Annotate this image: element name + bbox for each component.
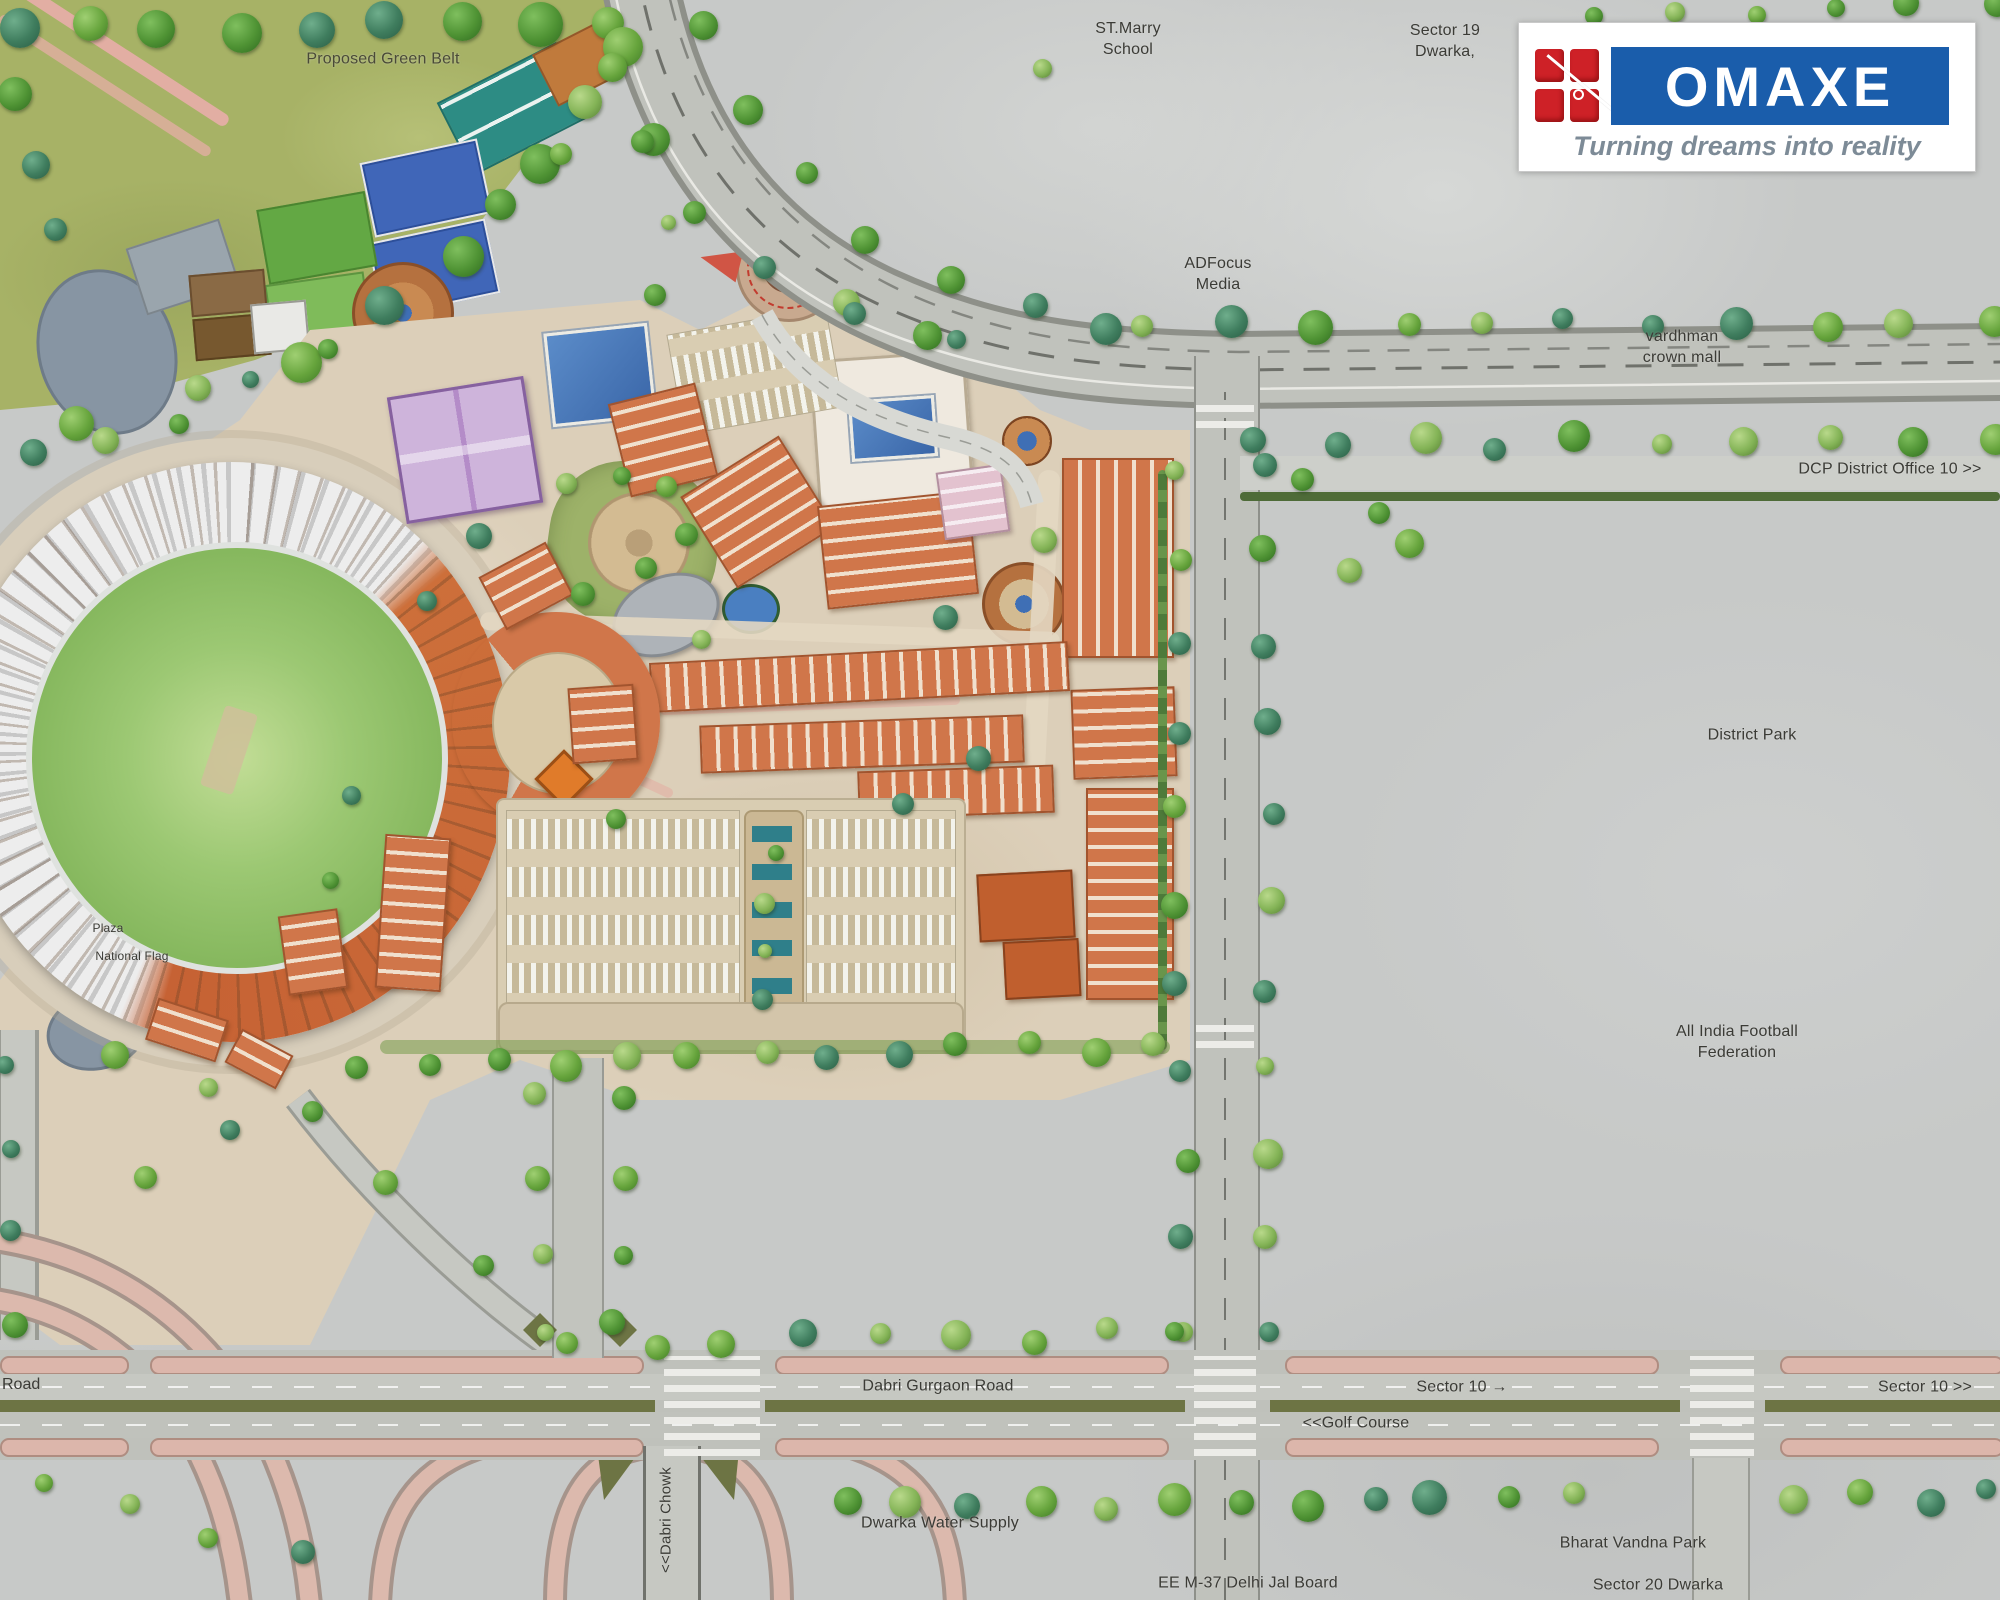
label-road-left: Road (2, 1376, 40, 1394)
label-dwarka-water-supply: Dwarka Water Supply (861, 1514, 1019, 1535)
highway-shoulder (150, 1438, 644, 1457)
park-boundary-hedge (1240, 492, 2000, 501)
label-vardhman-crown-mall: vardhman crown mall (1643, 327, 1721, 369)
highway-shoulder (0, 1356, 129, 1375)
pedestrian-crossing (1196, 1018, 1254, 1048)
highway-shoulder (775, 1438, 1169, 1457)
highway-shoulder (775, 1356, 1169, 1375)
label-golf-course: <<Golf Course (1303, 1414, 1410, 1435)
label-district-park: District Park (1708, 726, 1797, 747)
highway-shoulder (1780, 1356, 2000, 1375)
omaxe-logo: OMAXE Turning dreams into reality (1518, 22, 1976, 172)
label-ee-m37: EE M-37 Delhi Jal Board (1158, 1574, 1338, 1595)
highway-median (1270, 1400, 1680, 1412)
highway-shoulder (0, 1438, 129, 1457)
highway-shoulder (1285, 1356, 1659, 1375)
label-bharat-vandna-park: Bharat Vandna Park (1560, 1534, 1707, 1555)
logo-red-square (1535, 89, 1564, 122)
label-proposed-green-belt: Proposed Green Belt (306, 50, 459, 71)
label-sector-19-dwarka: Sector 19 Dwarka, (1410, 21, 1480, 63)
pedestrian-crossing (1194, 1356, 1256, 1456)
omaxe-brand-bar: OMAXE (1611, 47, 1949, 125)
highway-shoulder (1285, 1438, 1659, 1457)
label-dabri-chowk: <<Dabri Chowk (656, 1467, 676, 1573)
pedestrian-crossing (1196, 398, 1254, 428)
label-sector-20-dwarka: Sector 20 Dwarka (1593, 1576, 1723, 1597)
label-adfocus-media: ADFocus Media (1184, 254, 1251, 296)
highway-median (0, 1400, 655, 1412)
omaxe-brand-text: OMAXE (1665, 54, 1895, 119)
label-dcp-district-office: DCP District Office 10 >> (1798, 460, 1981, 481)
label-plaza: Plaza (92, 921, 123, 937)
label-sector-10-right: Sector 10 >> (1878, 1378, 1972, 1399)
site-plan-canvas: Proposed Green Belt ST.Marry School Sect… (0, 0, 2000, 1600)
parking-access-road (552, 1058, 604, 1358)
highway-shoulder (1780, 1438, 2000, 1457)
label-sector-10-mid: Sector 10 → (1416, 1378, 1507, 1399)
pedestrian-crossing (664, 1356, 760, 1456)
label-aiff: All India Football Federation (1676, 1022, 1798, 1064)
omaxe-tagline: Turning dreams into reality (1531, 131, 1963, 162)
omaxe-logo-icon (1535, 49, 1601, 123)
label-national-flag: National Flag (95, 949, 168, 965)
label-st-marry-school: ST.Marry School (1095, 19, 1161, 61)
highway-shoulder (150, 1356, 644, 1375)
logo-dot-mark (1573, 89, 1584, 100)
highway-median (1765, 1400, 2000, 1412)
label-dabri-gurgaon-road: Dabri Gurgaon Road (862, 1377, 1013, 1398)
highway-median (765, 1400, 1185, 1412)
pedestrian-crossing (1690, 1356, 1754, 1456)
